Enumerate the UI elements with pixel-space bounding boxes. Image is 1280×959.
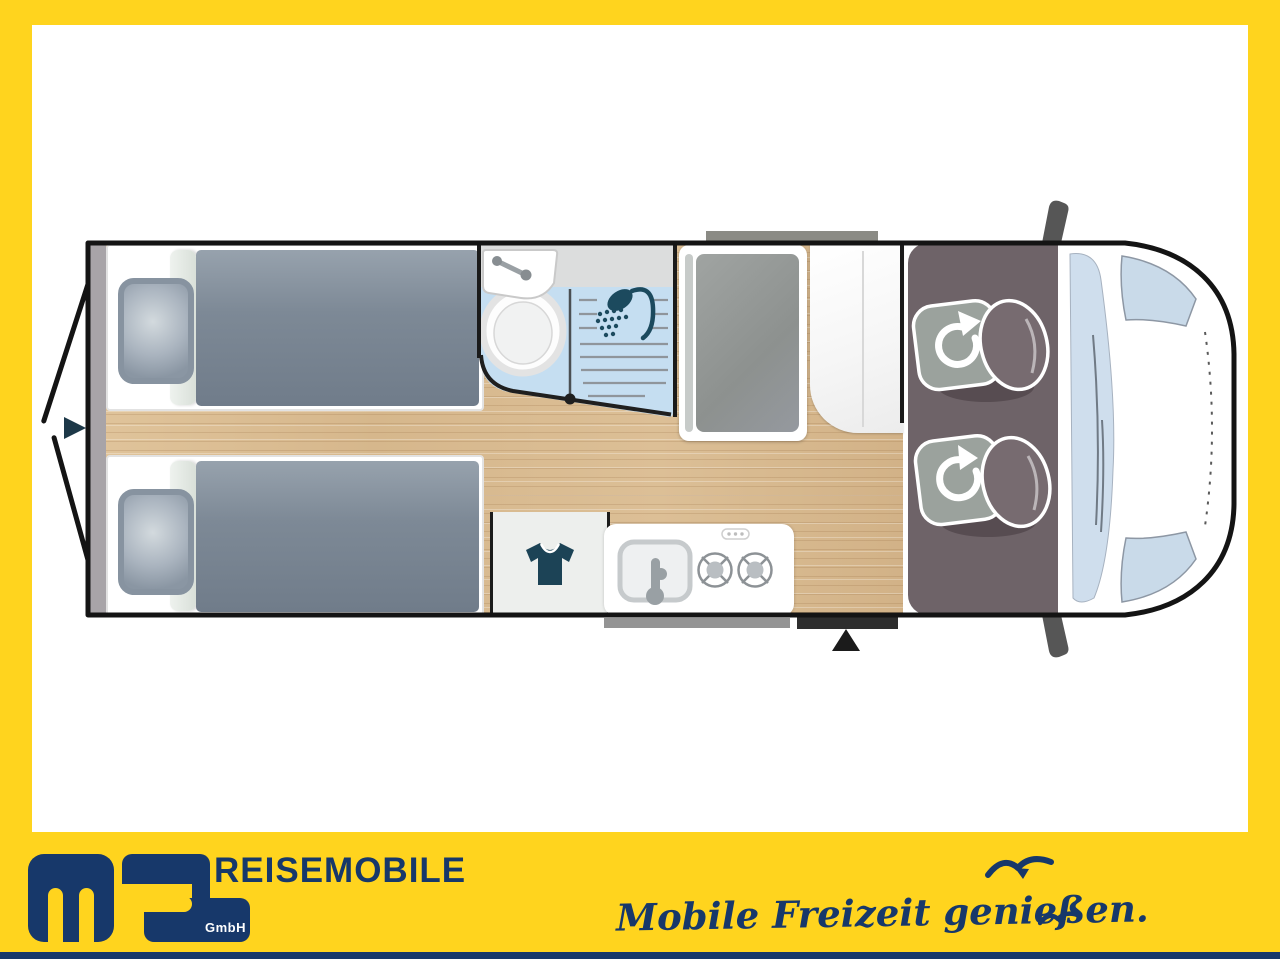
company-name: REISEMOBILE (214, 851, 466, 891)
logo-shape (192, 874, 210, 906)
headlight-window-bottom (1121, 532, 1196, 602)
side-mirror-icon (1042, 201, 1069, 243)
kitchen-skirt (604, 618, 790, 628)
kitchen-equipment (604, 524, 794, 616)
pillow (118, 489, 194, 595)
hob-control-pill (722, 529, 749, 539)
headboard-strip (90, 243, 106, 615)
logo-slot (79, 888, 94, 942)
side-mirror-icon (1042, 615, 1069, 657)
rear-door-swing-line (41, 276, 93, 424)
cab-glazing (1070, 254, 1212, 602)
headlight-window-top (1121, 256, 1196, 326)
logo-slot (48, 888, 63, 942)
windshield (1070, 254, 1114, 602)
motorhome-floorplan (0, 0, 1280, 959)
kitchen-sink-icon (620, 542, 690, 605)
entry-door (797, 616, 898, 629)
logo-suffix: GmbH (190, 920, 246, 935)
seagull-icon (1038, 908, 1082, 932)
duvet (196, 461, 479, 612)
two-burner-hob-icon (699, 554, 772, 587)
swivel-seat-passenger (910, 420, 1060, 550)
awning-bar (706, 231, 878, 243)
single-bed-top (106, 244, 484, 411)
rear-entry-arrow-icon (64, 417, 86, 439)
footer-strip (0, 952, 1280, 959)
unit-seam (862, 251, 864, 427)
bonnet-dashed-line (1205, 332, 1212, 526)
logo-shape (142, 896, 192, 912)
seagull-icon (985, 851, 1055, 885)
logo-letter-m (28, 854, 114, 942)
cabinet-interior (696, 254, 799, 432)
duvet (196, 250, 479, 406)
entry-arrow-icon (832, 629, 860, 651)
single-bed-bottom (106, 455, 484, 617)
wardrobe-cabinet (679, 245, 807, 441)
cabinet-hinge-strip (685, 254, 693, 432)
entrance-side-unit (810, 245, 903, 433)
swivel-seat-driver (908, 285, 1058, 415)
pillow (118, 278, 194, 384)
clothes-cabinet (490, 512, 610, 616)
t-shirt-icon (524, 541, 576, 587)
